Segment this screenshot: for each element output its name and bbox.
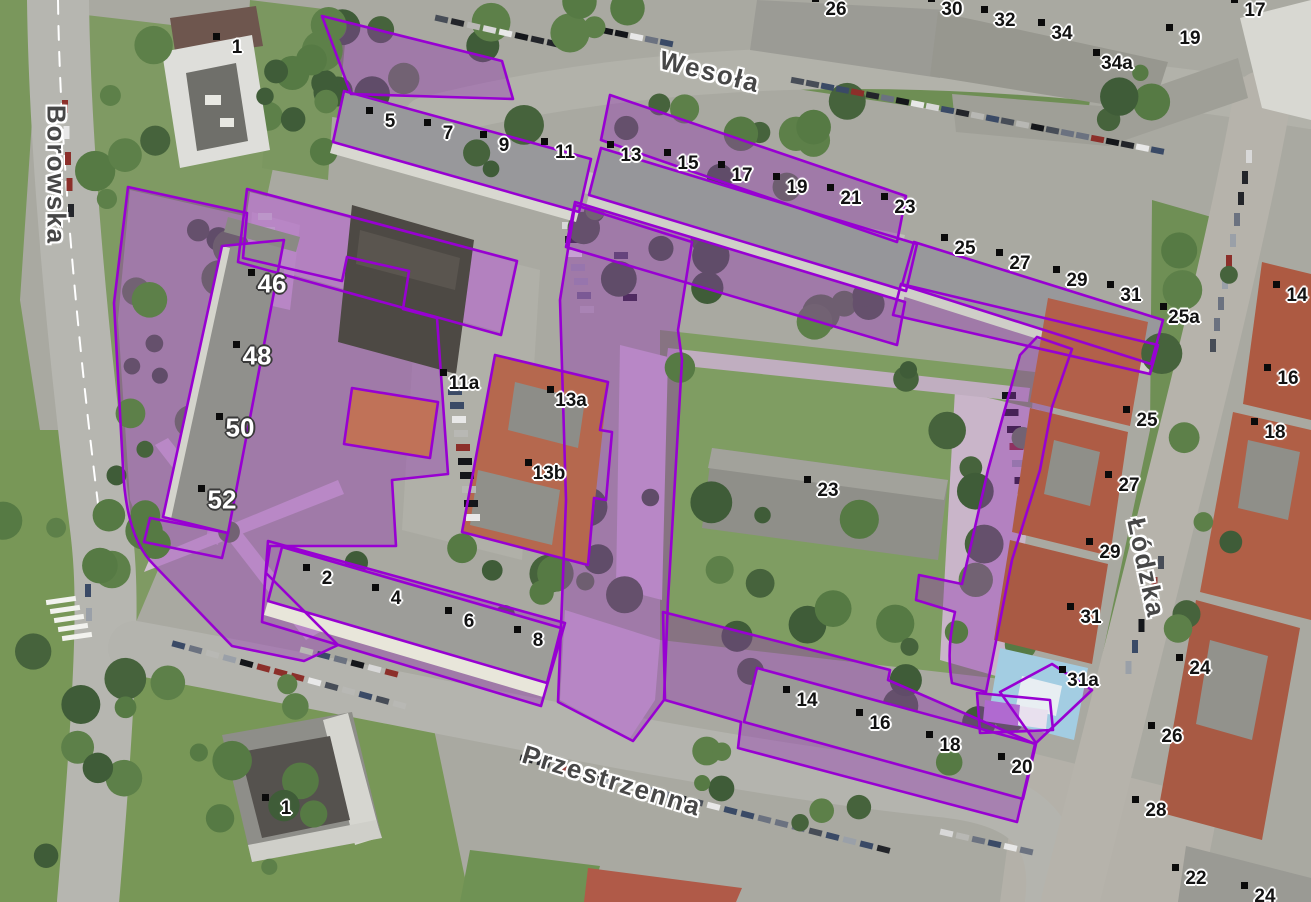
- aerial-basemap: [0, 0, 1311, 902]
- map-viewport[interactable]: 1579111315171921232527293125a2630323434a…: [0, 0, 1311, 902]
